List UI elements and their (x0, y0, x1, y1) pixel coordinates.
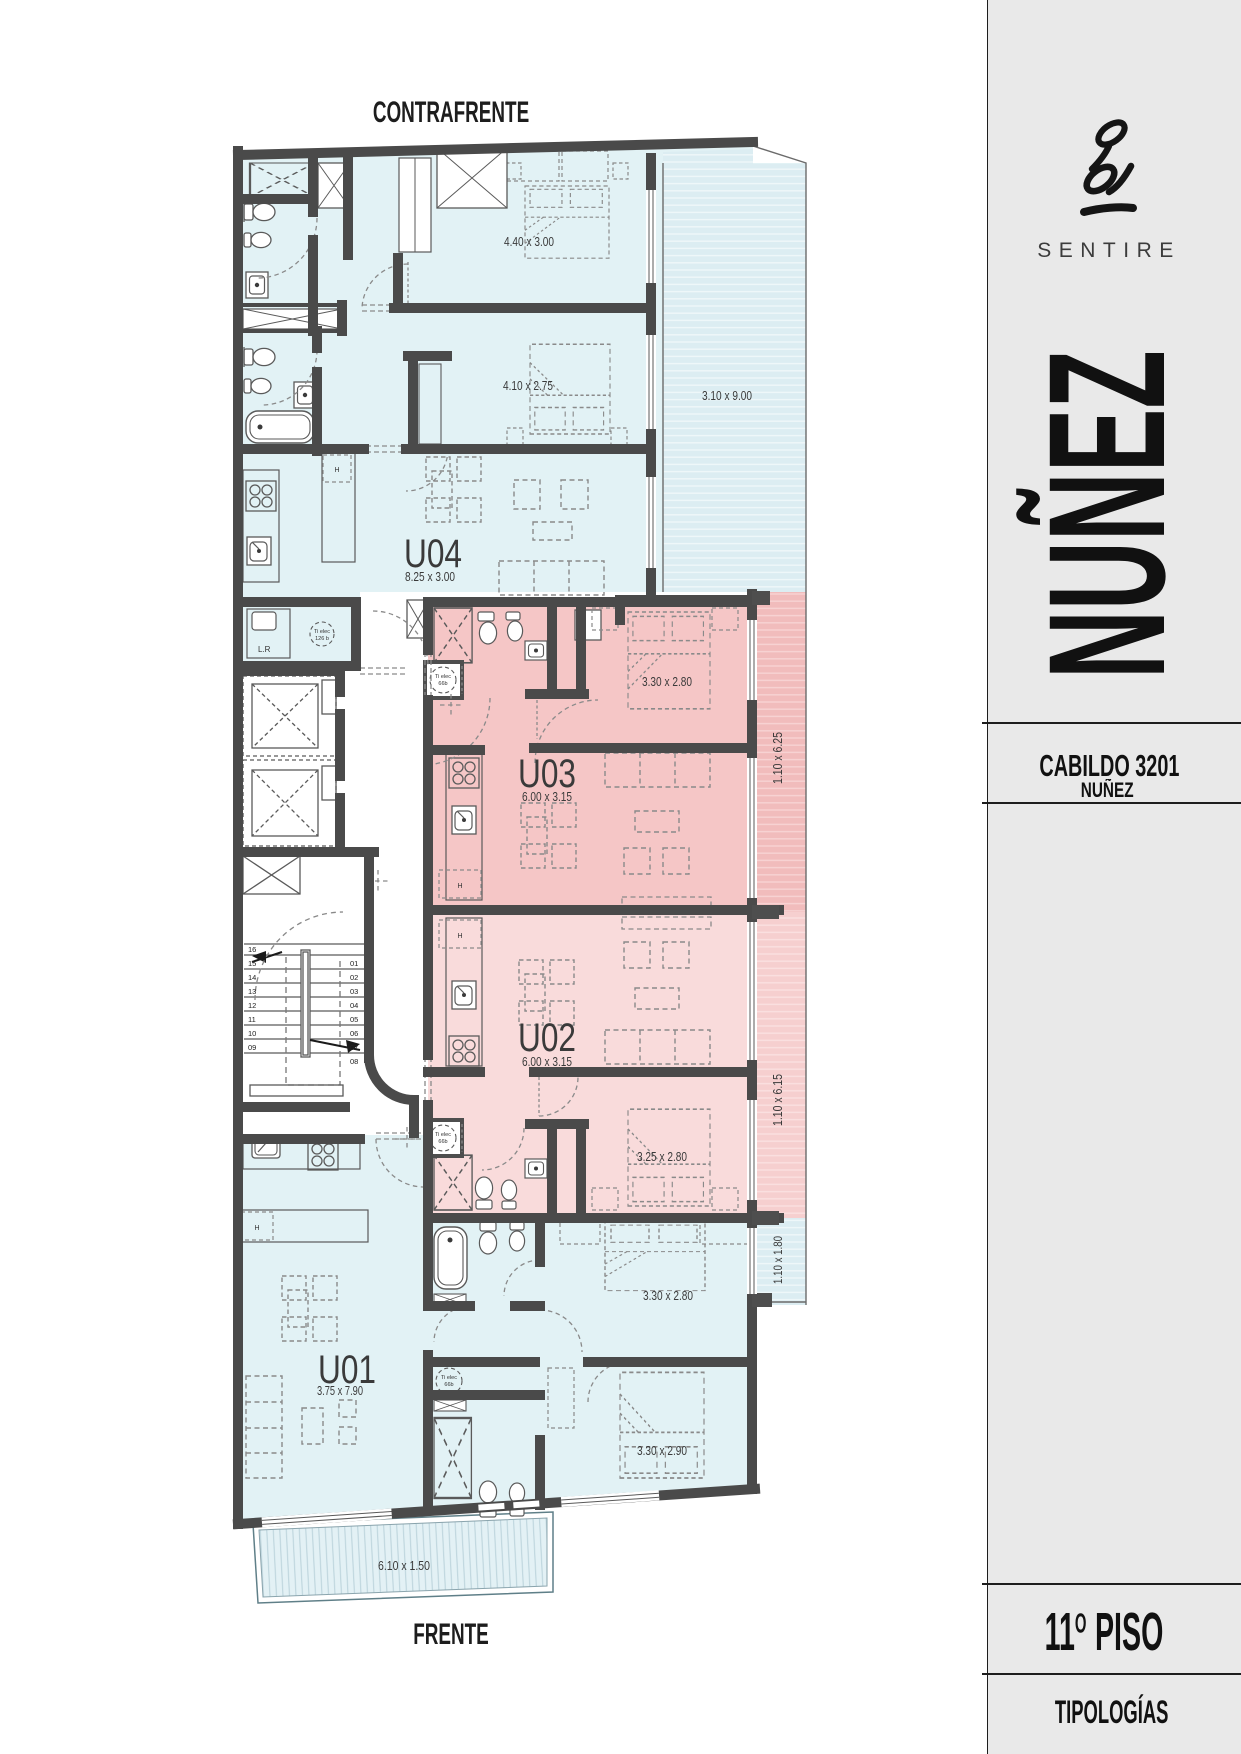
svg-text:14: 14 (248, 973, 256, 982)
svg-text:CONTRAFRENTE: CONTRAFRENTE (373, 96, 529, 130)
svg-text:15: 15 (248, 959, 256, 968)
svg-text:02: 02 (350, 973, 358, 982)
svg-text:SENTIRE: SENTIRE (1037, 239, 1181, 262)
svg-text:FRENTE: FRENTE (413, 1618, 489, 1652)
svg-text:3.10 x 9.00: 3.10 x 9.00 (702, 389, 752, 403)
svg-text:08: 08 (350, 1057, 358, 1066)
svg-text:3.30 x 2.80: 3.30 x 2.80 (642, 675, 692, 689)
svg-text:4.40 x 3.00: 4.40 x 3.00 (504, 235, 554, 249)
svg-text:3.25 x 2.80: 3.25 x 2.80 (637, 1150, 687, 1164)
svg-text:1.10 x 1.80: 1.10 x 1.80 (771, 1236, 785, 1284)
svg-text:6.00 x 3.15: 6.00 x 3.15 (522, 790, 572, 804)
svg-text:6.00 x 3.15: 6.00 x 3.15 (522, 1055, 572, 1069)
svg-text:12: 12 (248, 1001, 256, 1010)
svg-text:H: H (334, 467, 339, 474)
svg-text:13: 13 (248, 987, 256, 996)
svg-text:05: 05 (350, 1015, 358, 1024)
svg-text:3.75 x 7.90: 3.75 x 7.90 (317, 1384, 363, 1398)
svg-text:Ti elec: Ti elec (314, 629, 330, 635)
svg-text:10: 10 (248, 1029, 256, 1038)
svg-text:H: H (254, 1225, 259, 1232)
svg-text:L.R: L.R (258, 645, 271, 654)
svg-text:1.10 x 6.15: 1.10 x 6.15 (771, 1074, 785, 1126)
svg-text:03: 03 (350, 987, 358, 996)
svg-text:U02: U02 (518, 1016, 576, 1060)
svg-text:06: 06 (350, 1029, 358, 1038)
svg-text:126 b: 126 b (315, 636, 329, 642)
svg-text:H: H (457, 883, 462, 890)
svg-text:H: H (457, 933, 462, 940)
svg-text:07: 07 (350, 1043, 358, 1052)
svg-text:04: 04 (350, 1001, 358, 1010)
svg-text:3.30 x 2.80: 3.30 x 2.80 (643, 1289, 693, 1303)
svg-text:01: 01 (350, 959, 358, 968)
svg-text:11: 11 (248, 1015, 256, 1024)
svg-text:1.10 x 6.25: 1.10 x 6.25 (771, 732, 785, 784)
svg-text:6.10 x 1.50: 6.10 x 1.50 (378, 1559, 430, 1573)
svg-text:4.10 x 2.75: 4.10 x 2.75 (503, 379, 553, 393)
svg-text:16: 16 (248, 945, 256, 954)
svg-text:NUÑEZ: NUÑEZ (1013, 350, 1199, 679)
svg-text:09: 09 (248, 1043, 256, 1052)
svg-text:3.30 x 2.90: 3.30 x 2.90 (637, 1444, 687, 1458)
svg-text:8.25 x 3.00: 8.25 x 3.00 (405, 570, 455, 584)
